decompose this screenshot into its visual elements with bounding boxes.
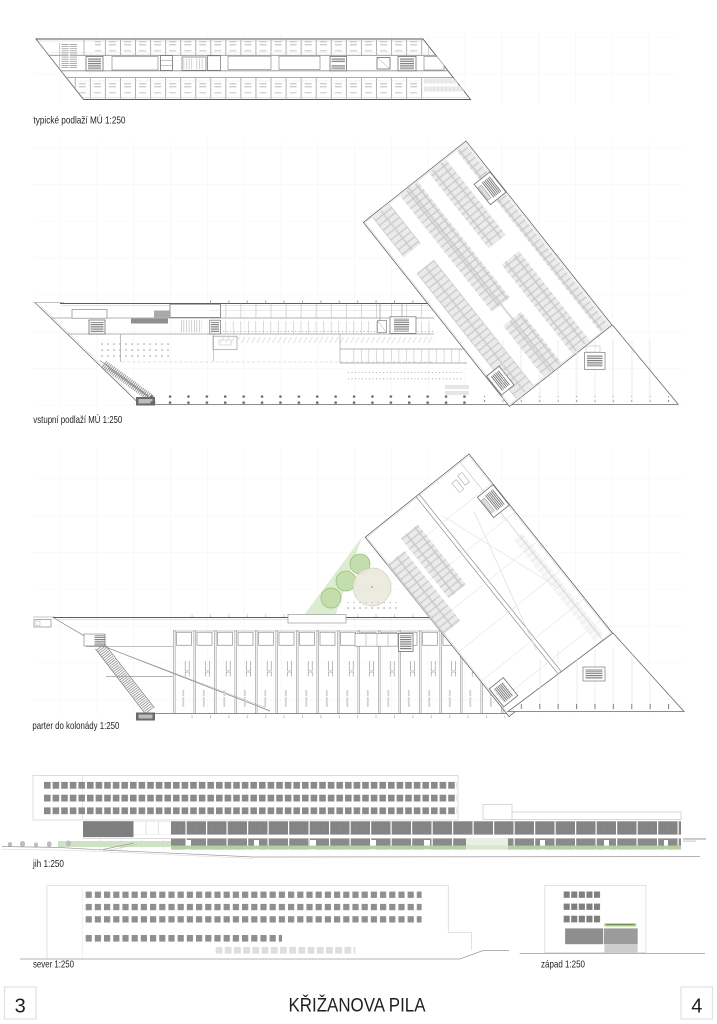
svg-text:KŘIŽANOVA PILA: KŘIŽANOVA PILA xyxy=(289,994,426,1017)
svg-text:jih 1:250: jih 1:250 xyxy=(32,858,64,870)
svg-text:západ 1:250: západ 1:250 xyxy=(541,959,585,971)
svg-text:3: 3 xyxy=(15,996,26,1018)
svg-text:vstupní podlaží MÚ 1:250: vstupní podlaží MÚ 1:250 xyxy=(33,413,122,426)
svg-text:typické podlaží MÚ 1:250: typické podlaží MÚ 1:250 xyxy=(34,114,126,127)
svg-text:parter do kolonády 1:250: parter do kolonády 1:250 xyxy=(32,720,119,732)
svg-text:4: 4 xyxy=(691,996,702,1018)
svg-text:sever 1:250: sever 1:250 xyxy=(33,959,74,971)
